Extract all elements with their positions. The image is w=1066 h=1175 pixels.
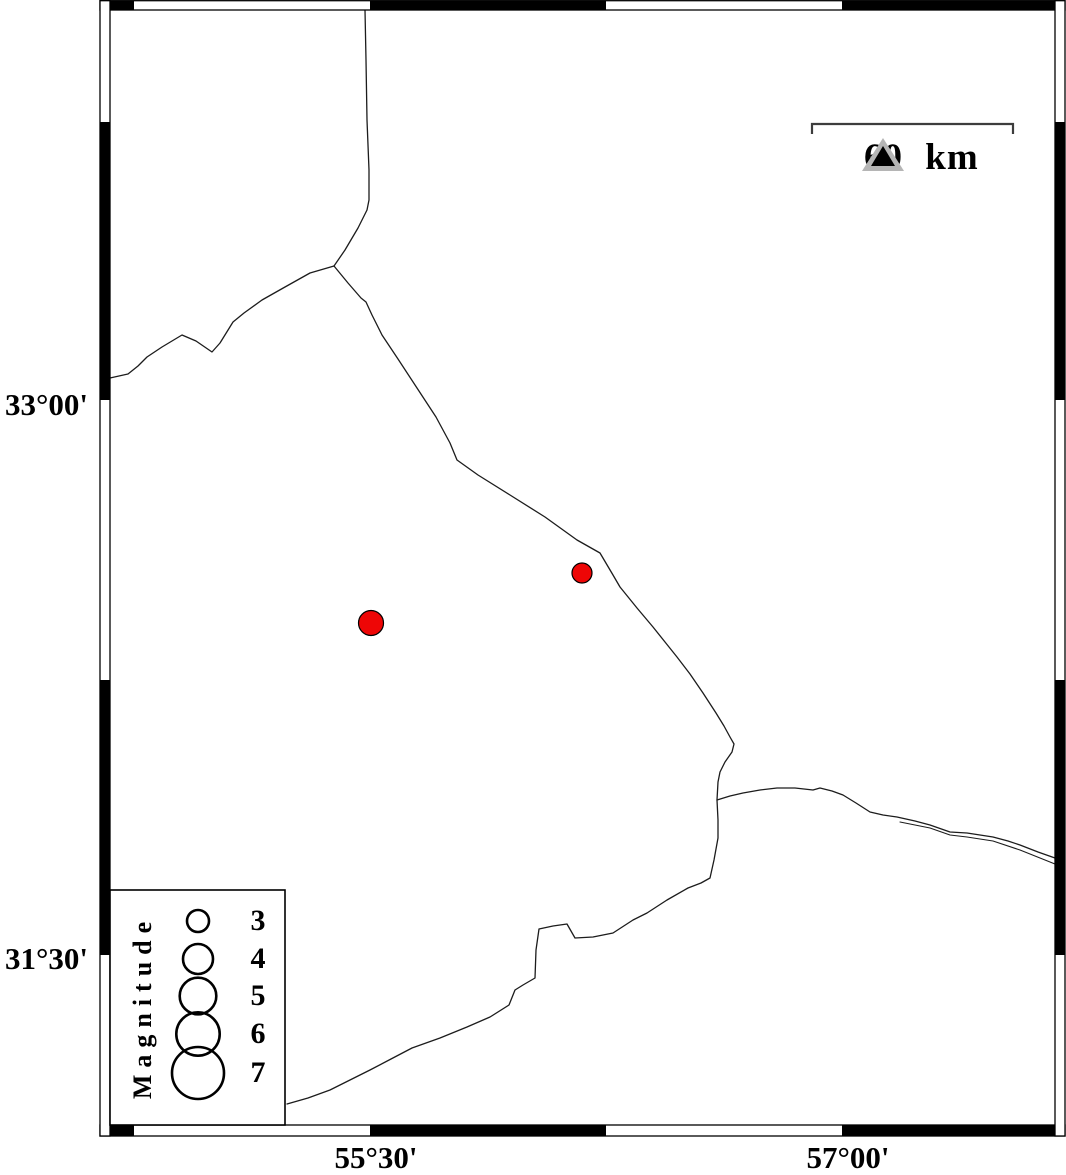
frame-graduation-segment [100, 680, 110, 955]
epicenter-dot [572, 563, 592, 583]
frame-graduation-segment [1055, 680, 1065, 955]
station-triangle-icon [858, 132, 910, 176]
lon-label-57-00: 57°00' [768, 1142, 928, 1173]
border-line-north-border [334, 10, 369, 266]
scale-bar-bracket [812, 124, 1013, 134]
frame-graduation-segment [110, 1125, 134, 1136]
frame-graduation-segment [370, 1, 606, 10]
legend-magnitude-4: 4 [238, 944, 278, 974]
frame-graduation-segment [1055, 122, 1065, 400]
legend-magnitude-7: 7 [238, 1058, 278, 1088]
frame-graduation-segment [842, 1, 1055, 10]
border-line-east-border-companion [900, 822, 1055, 864]
epicenter-dot [359, 611, 384, 636]
seismicity-map: 33°00' 31°30' 55°30' 57°00' 60 km Magnit… [0, 0, 1066, 1175]
lat-label-33-00: 33°00' [0, 389, 88, 420]
lon-label-55-30: 55°30' [296, 1142, 456, 1173]
frame-graduation-segment [370, 1125, 606, 1136]
legend-magnitude-3: 3 [238, 906, 278, 936]
frame-graduation-segment [842, 1125, 1055, 1136]
legend-magnitude-5: 5 [238, 981, 278, 1011]
frame-graduation-segment [110, 1, 134, 10]
border-line-northwest-border [110, 266, 334, 378]
frame-graduation-segment [100, 122, 110, 400]
border-line-east-border [717, 788, 1055, 858]
legend-title: Magnitude [129, 892, 157, 1122]
legend-magnitude-6: 6 [238, 1019, 278, 1049]
border-line-main-diagonal-border [287, 266, 734, 1104]
lat-label-31-30: 31°30' [0, 943, 88, 974]
